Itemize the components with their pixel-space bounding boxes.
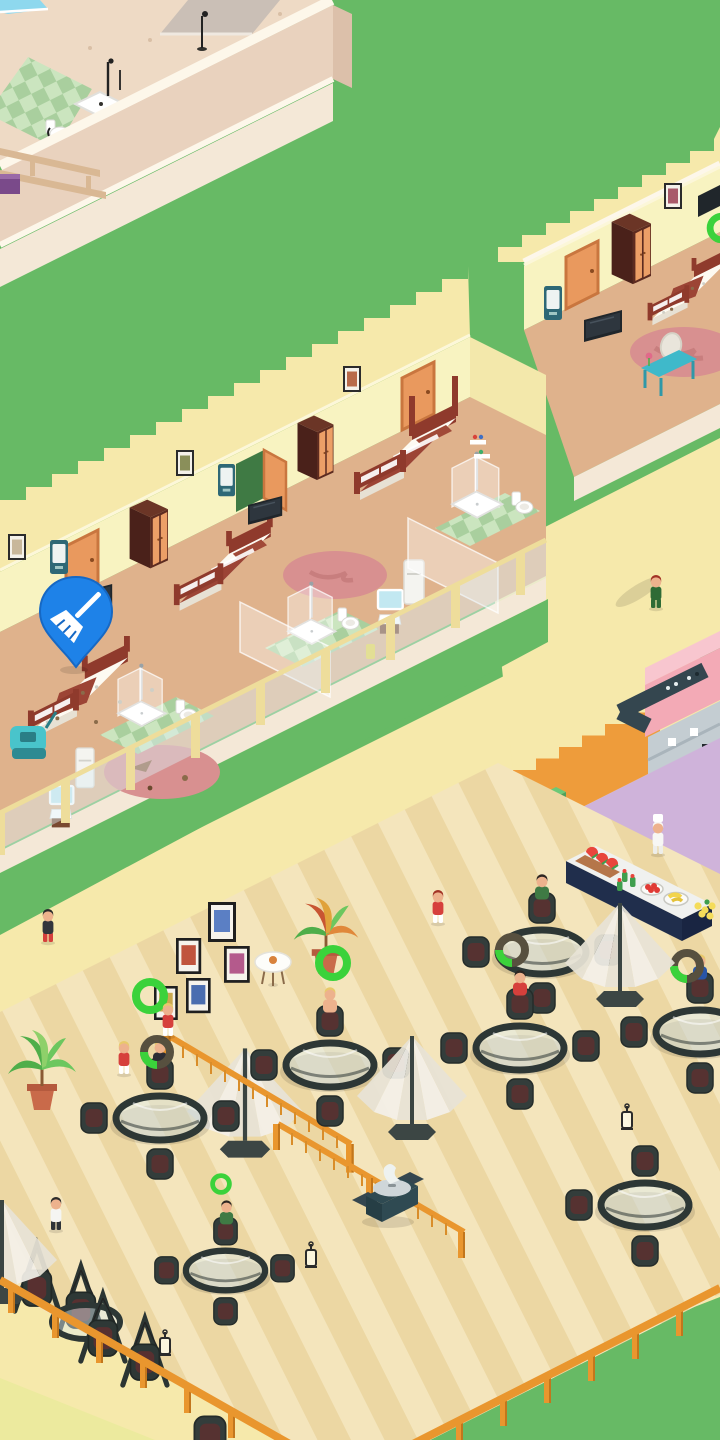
minibar <box>544 286 562 320</box>
wardrobe <box>612 214 651 285</box>
tomato-bowl <box>641 883 663 895</box>
game-scene <box>0 0 720 1440</box>
minibar <box>218 464 235 496</box>
minibar <box>50 540 68 574</box>
wardrobe <box>298 416 334 481</box>
game-viewport[interactable] <box>0 0 720 1440</box>
deck-chair <box>194 1416 225 1440</box>
wall-picture <box>664 183 682 209</box>
banana-plate <box>664 893 688 906</box>
wardrobe <box>130 500 168 569</box>
